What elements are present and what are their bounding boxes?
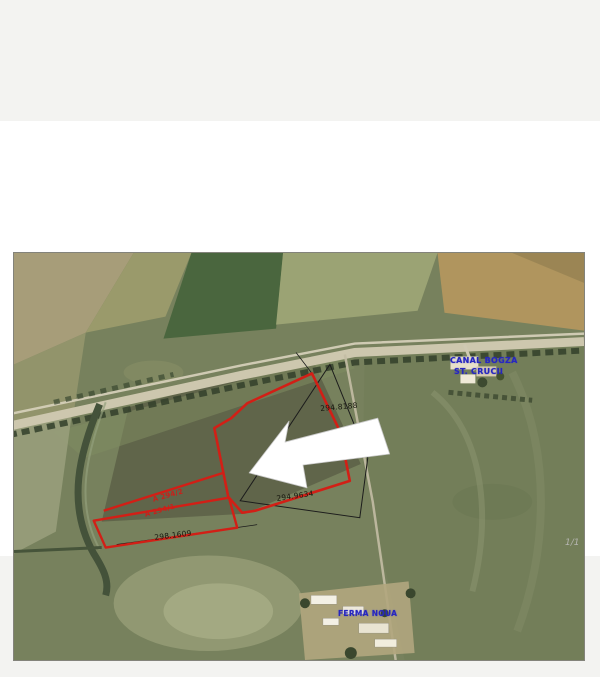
poi-label-top-line2: ST. CRUCII xyxy=(454,368,503,376)
satellite-image xyxy=(14,253,584,660)
page-indicator: 1/1 xyxy=(565,538,579,548)
aerial-photo: 294.8188 294.9634 298.1609 A 294/2 A 294… xyxy=(13,252,585,661)
document-panel: 294.8188 294.9634 298.1609 A 294/2 A 294… xyxy=(0,121,600,556)
poi-label-top-line1: CANAL BOGZA xyxy=(450,357,518,365)
poi-label-bottom: FERMA NOUA xyxy=(338,610,397,618)
